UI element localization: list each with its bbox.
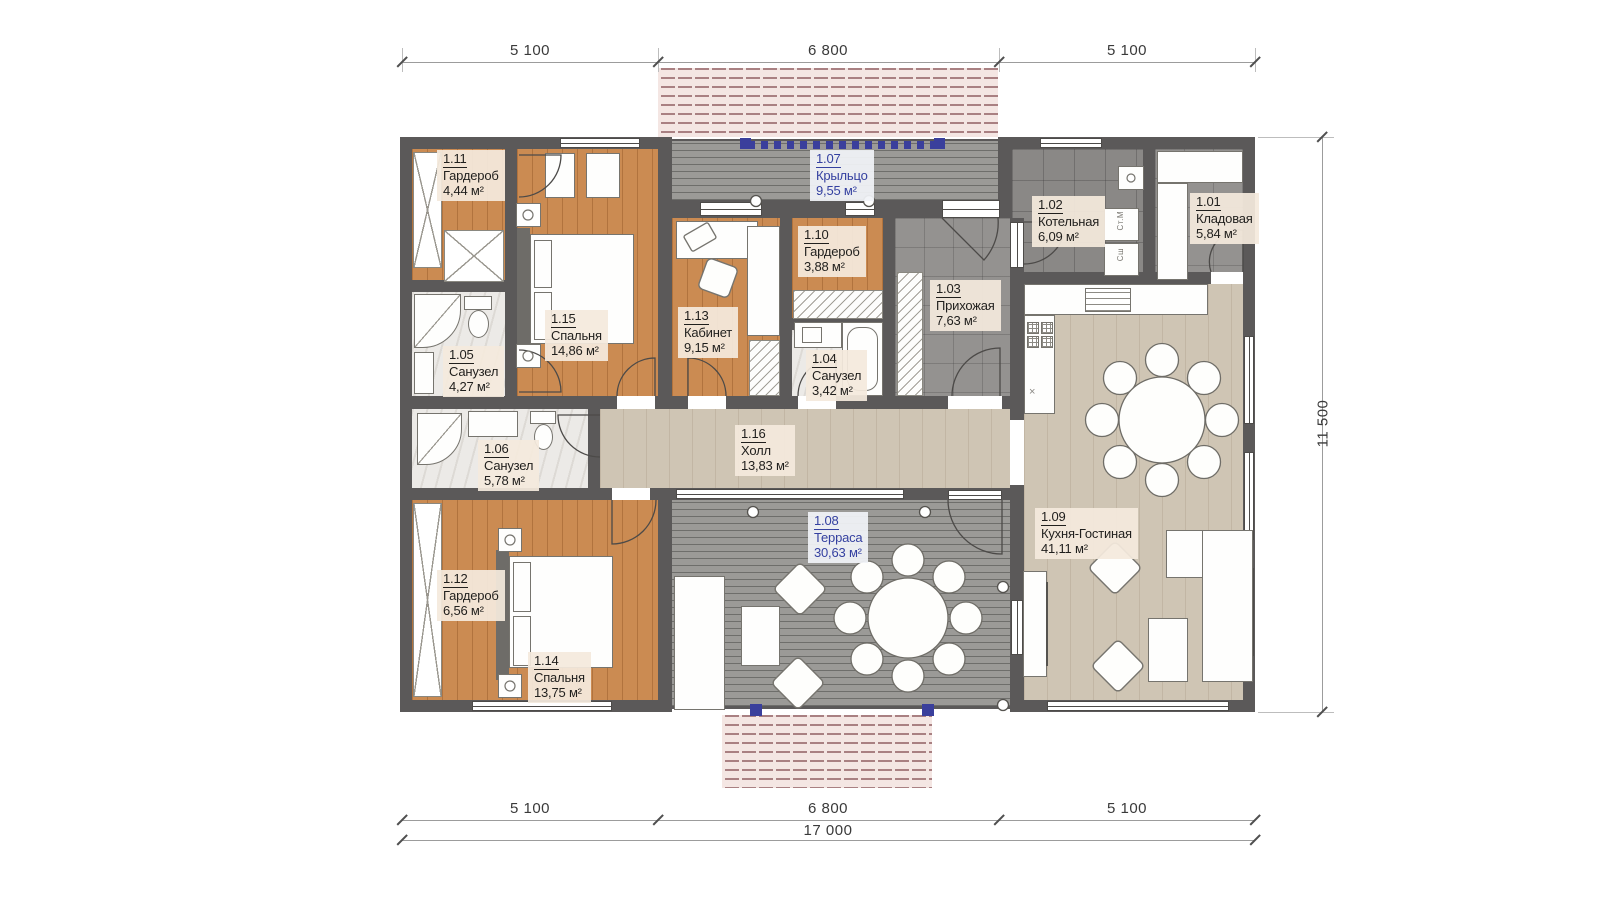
closet-shelves <box>793 290 883 319</box>
dim-bottom-center: 6 800 <box>778 800 878 817</box>
bathroom-vanity <box>468 411 518 437</box>
wall-segment <box>588 409 600 500</box>
room-name: Кладовая <box>1196 212 1253 227</box>
bookcase <box>749 340 780 396</box>
room-name: Санузел <box>449 365 498 380</box>
room-area: 4,44 м² <box>443 184 499 199</box>
nightstand <box>498 528 522 552</box>
railing-post <box>740 138 751 149</box>
dim-line-top <box>402 62 1255 63</box>
dim-top-center: 6 800 <box>778 42 878 59</box>
dryer-label: Сш <box>1116 248 1125 261</box>
window <box>560 138 640 148</box>
cooktop-burner <box>1027 322 1039 334</box>
room-area: 6,09 м² <box>1038 230 1099 245</box>
wall-segment <box>658 137 672 409</box>
porch-railing <box>748 141 938 149</box>
dim-line-bottom <box>402 820 1255 821</box>
wall-segment <box>655 396 688 409</box>
entrance-door-sill <box>942 200 1000 218</box>
room-label-1-03: 1.03 Прихожая 7,63 м² <box>930 280 1001 331</box>
dishwasher <box>1085 288 1131 312</box>
window <box>1244 452 1254 540</box>
dresser <box>586 153 620 198</box>
room-name: Терраса <box>814 531 862 546</box>
room-area: 5,78 м² <box>484 474 533 489</box>
room-label-1-04: 1.04 Санузел 3,42 м² <box>806 350 867 401</box>
room-area: 3,42 м² <box>812 384 861 399</box>
room-label-1-12: 1.12 Гардероб 6,56 м² <box>437 570 505 621</box>
dim-right-height: 11 500 <box>1315 393 1332 455</box>
wall-segment <box>780 218 792 396</box>
room-area: 5,84 м² <box>1196 227 1253 242</box>
wall-segment <box>658 488 672 712</box>
cooktop-burner <box>1027 336 1039 348</box>
room-label-1-16: 1.16 Холл 13,83 м² <box>735 425 795 476</box>
room-name: Крыльцо <box>816 169 868 184</box>
floor-plan-canvas: Ст.М Сш × <box>0 0 1599 900</box>
hall-kitchen-opening <box>1010 420 1024 485</box>
wall-segment <box>726 396 798 409</box>
desk <box>676 221 758 259</box>
dim-top-right: 5 100 <box>1077 42 1177 59</box>
room-area: 9,55 м² <box>816 184 868 199</box>
room-name: Кухня-Гостиная <box>1041 527 1132 542</box>
cooktop-burner <box>1041 322 1053 334</box>
room-label-1-07: 1.07 Крыльцо 9,55 м² <box>810 150 874 201</box>
dim-total-width: 17 000 <box>778 822 878 839</box>
closet-shelves <box>897 272 923 396</box>
storage-cabinet <box>1157 151 1243 183</box>
room-label-1-14: 1.14 Спальня 13,75 м² <box>528 652 591 703</box>
room-area: 7,63 м² <box>936 314 995 329</box>
dim-bottom-left: 5 100 <box>480 800 580 817</box>
room-label-1-11: 1.11 Гардероб 4,44 м² <box>437 150 505 201</box>
room-label-1-02: 1.02 Котельная 6,09 м² <box>1032 196 1105 247</box>
boiler-door-sill <box>1010 222 1024 268</box>
window <box>845 202 875 216</box>
tv <box>1046 582 1048 666</box>
pillow <box>513 562 531 612</box>
room-label-1-09: 1.09 Кухня-Гостиная 41,11 м² <box>1035 508 1138 559</box>
nightstand <box>498 674 522 698</box>
room-label-1-10: 1.10 Гардероб 3,88 м² <box>798 226 866 277</box>
railing-post <box>934 138 945 149</box>
dim-bottom-right: 5 100 <box>1077 800 1177 817</box>
dim-line-total <box>402 840 1255 841</box>
pillow <box>534 240 552 288</box>
window <box>1011 600 1023 655</box>
dresser <box>545 153 575 198</box>
window <box>1047 701 1229 711</box>
bathroom-vanity <box>414 352 434 394</box>
room-name: Санузел <box>484 459 533 474</box>
boiler <box>1118 166 1144 190</box>
room-label-1-15: 1.15 Спальня 14,86 м² <box>545 310 608 361</box>
window <box>700 202 762 216</box>
sofa <box>747 226 780 336</box>
sink <box>802 327 822 343</box>
storage-cabinet <box>1157 183 1188 280</box>
coffee-table <box>1148 618 1188 682</box>
room-label-1-08: 1.08 Терраса 30,63 м² <box>808 512 868 563</box>
room-area: 6,56 м² <box>443 604 499 619</box>
nightstand <box>516 344 541 368</box>
railing-post <box>750 704 762 716</box>
wall-segment <box>1143 149 1155 272</box>
drain-mark: × <box>1029 386 1035 398</box>
room-label-1-06: 1.06 Санузел 5,78 м² <box>478 440 539 491</box>
room-area: 4,27 м² <box>449 380 498 395</box>
room-area: 3,88 м² <box>804 260 860 275</box>
dim-top-left: 5 100 <box>480 42 580 59</box>
cooktop-burner <box>1041 336 1053 348</box>
roof-overhang-top <box>658 68 998 137</box>
room-area: 30,63 м² <box>814 546 862 561</box>
sofa <box>1202 530 1253 682</box>
room-name: Санузел <box>812 369 861 384</box>
toilet-tank <box>530 411 556 424</box>
terrace-door-sill <box>948 490 1002 500</box>
room-area: 9,15 м² <box>684 341 732 356</box>
coffee-table <box>741 606 780 666</box>
room-name: Холл <box>741 444 789 459</box>
tv-stand <box>1023 571 1047 677</box>
room-name: Спальня <box>551 329 602 344</box>
wall-segment <box>400 137 412 712</box>
wall-segment <box>1000 137 1255 149</box>
railing-post <box>922 704 934 716</box>
toilet-tank <box>464 296 492 310</box>
washer-label: Ст.М <box>1116 211 1125 230</box>
room-name: Кабинет <box>684 326 732 341</box>
room-label-1-05: 1.05 Санузел 4,27 м² <box>443 346 504 397</box>
toilet-bowl <box>468 310 489 338</box>
room-name: Гардероб <box>804 245 860 260</box>
room-name: Спальня <box>534 671 585 686</box>
window <box>1040 138 1102 148</box>
wardrobe-cabinet <box>444 230 504 282</box>
room-name: Гардероб <box>443 169 499 184</box>
room-label-1-13: 1.13 Кабинет 9,15 м² <box>678 307 738 358</box>
floor-hall-1-16 <box>600 409 1010 488</box>
roof-overhang-bottom <box>722 715 932 788</box>
window <box>1244 336 1254 424</box>
room-label-1-01: 1.01 Кладовая 5,84 м² <box>1190 193 1259 244</box>
sofa <box>674 576 725 710</box>
wall-segment <box>1010 485 1024 510</box>
terrace-glazing <box>676 489 904 499</box>
room-name: Прихожая <box>936 299 995 314</box>
room-area: 14,86 м² <box>551 344 602 359</box>
room-area: 13,75 м² <box>534 686 585 701</box>
room-area: 13,83 м² <box>741 459 789 474</box>
room-name: Котельная <box>1038 215 1099 230</box>
room-area: 41,11 м² <box>1041 542 1132 557</box>
wall-segment <box>883 218 895 396</box>
wall-segment <box>412 396 617 409</box>
nightstand <box>516 203 541 227</box>
bed-headboard <box>517 228 530 350</box>
room-name: Гардероб <box>443 589 499 604</box>
